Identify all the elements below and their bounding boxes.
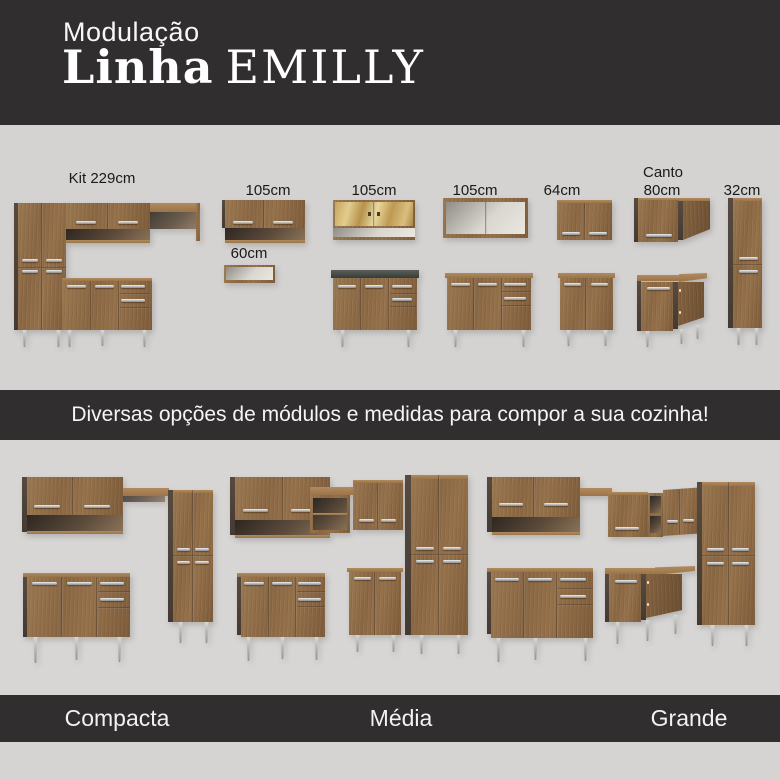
leg (679, 329, 684, 344)
handle (589, 232, 607, 235)
cabinet-corner-base-80 (637, 271, 707, 348)
leg (355, 635, 360, 652)
kitchen-compacta (22, 477, 215, 668)
drawer-divider (297, 606, 325, 608)
drawer-divider (390, 293, 417, 295)
door-divider (282, 477, 284, 520)
cubby (650, 496, 661, 513)
leg (117, 637, 122, 662)
drawer-divider (297, 591, 325, 593)
handle (243, 509, 268, 512)
angled-side (683, 201, 710, 240)
leg (521, 330, 526, 347)
drawer-divider (558, 604, 593, 606)
size-label-grande: Grande (651, 695, 728, 742)
handle (273, 221, 293, 224)
leg (67, 330, 72, 347)
handle (732, 562, 749, 565)
leg (419, 635, 424, 654)
shelf-board (313, 513, 347, 515)
open-niche (150, 212, 196, 229)
module-label-105-2: 105cm (351, 182, 396, 199)
handle (233, 221, 253, 224)
leg (314, 637, 319, 660)
open-niche (123, 496, 165, 502)
leg (710, 625, 715, 646)
handle (338, 285, 356, 288)
leg (645, 331, 650, 347)
leg (74, 637, 79, 660)
drawer-divider (502, 305, 531, 307)
cabinet-tall-32 (728, 198, 764, 350)
module-label-105-3: 105cm (452, 182, 497, 199)
handle (739, 257, 758, 260)
kitchens-section (0, 440, 780, 695)
glass-knob (368, 212, 371, 216)
handle (615, 527, 639, 530)
handle (34, 505, 60, 508)
handle (354, 577, 371, 580)
module-label-canto-1: Canto (643, 164, 683, 181)
open-niche (66, 229, 150, 240)
leg (340, 330, 345, 347)
handle (244, 582, 264, 585)
size-label-media: Média (370, 695, 433, 742)
page-title: LinhaEMILLY (62, 40, 425, 94)
handle (443, 547, 461, 550)
kitchen-grande (487, 477, 780, 667)
drawer-handle (392, 298, 412, 301)
door-divider (118, 281, 120, 330)
drawer-handle (560, 578, 586, 581)
shelf-board (333, 237, 415, 240)
handle (177, 548, 190, 551)
door-divider (679, 490, 681, 534)
handle (562, 232, 580, 235)
countertop-corner (679, 273, 707, 282)
base-cabinet (62, 281, 152, 330)
catalog-page: Modulação LinhaEMILLY Kit 229cm 105cm 60… (0, 0, 780, 780)
cabinet-open-105 (443, 198, 528, 238)
size-label-compacta: Compacta (65, 695, 170, 742)
handle (667, 520, 678, 523)
handle (443, 560, 461, 563)
cabinet-base-105 (445, 273, 533, 348)
countertop-corner (655, 566, 695, 575)
module-label-32: 32cm (724, 182, 761, 199)
cabinet-corner-wall-80 (634, 198, 710, 242)
cabinet-glass-105 (333, 200, 415, 240)
open-niche (226, 267, 273, 280)
leg (736, 328, 741, 345)
corner-recess (678, 201, 683, 240)
door-divider (584, 203, 586, 240)
corner-recess (641, 574, 646, 620)
drawer-handle (121, 285, 145, 288)
leg (204, 622, 209, 643)
handle (528, 578, 552, 581)
cabinet-kit-229 (14, 201, 200, 349)
handle (118, 221, 138, 224)
leg (33, 637, 38, 663)
shelf-60 (224, 265, 275, 283)
handle (365, 285, 383, 288)
module-label-kit229: Kit 229cm (69, 170, 136, 187)
drawer-handle (504, 297, 526, 300)
handle (381, 519, 396, 522)
kitchen-media (230, 475, 470, 690)
modules-section: Kit 229cm 105cm 60cm 105cm 105cm 64cm Ca… (0, 125, 780, 390)
leg (754, 328, 759, 345)
door-divider (728, 482, 730, 625)
handle (739, 270, 758, 273)
leg (22, 330, 27, 347)
leg (100, 330, 105, 346)
door-divider (61, 577, 63, 637)
bridge-shelf (123, 488, 169, 496)
cabinet-base-64 (558, 273, 615, 347)
title-linha: Linha (62, 40, 214, 94)
handle (379, 577, 396, 580)
handle (451, 283, 470, 286)
leg (391, 635, 396, 652)
top-board (733, 198, 762, 201)
drawer-handle (100, 582, 124, 585)
handle (95, 285, 114, 288)
open-niche (27, 515, 123, 531)
leg (406, 330, 411, 347)
leg (453, 330, 458, 347)
promo-banner: Diversas opções de módulos e medidas par… (0, 390, 780, 440)
open-niche (333, 228, 415, 237)
shelf-board (235, 535, 330, 538)
handle (495, 578, 519, 581)
door-divider (72, 477, 74, 515)
hinge-dot (647, 581, 649, 584)
header-banner: Modulação LinhaEMILLY (0, 0, 780, 125)
leg (583, 638, 588, 661)
leg (615, 622, 620, 644)
sizes-band: Compacta Média Grande (0, 695, 780, 742)
leg (456, 635, 461, 654)
side-panel (196, 203, 200, 241)
hinge-dot (647, 603, 649, 606)
bottom-strip (0, 742, 780, 780)
leg (56, 330, 61, 347)
shelf-board (150, 203, 200, 212)
drawer-divider (390, 306, 417, 308)
door-divider (90, 281, 92, 330)
handle (416, 560, 434, 563)
handle (67, 285, 86, 288)
leg (673, 615, 678, 634)
handle (76, 221, 96, 224)
hinge-dot (679, 289, 681, 292)
handle (615, 580, 637, 583)
door-divider (360, 278, 362, 330)
handle (564, 283, 581, 286)
door-divider (268, 577, 270, 637)
drawer-divider (120, 293, 150, 295)
handle (499, 503, 523, 506)
shelf-board (66, 240, 150, 243)
door-divider (411, 554, 468, 556)
countertop-sink (331, 270, 419, 278)
drawer-divider (120, 307, 150, 309)
door-divider (523, 572, 525, 638)
leg (566, 330, 571, 346)
handle (591, 283, 608, 286)
cabinet-sink-105 (331, 270, 419, 348)
cubby (650, 516, 661, 533)
shelf-board (225, 240, 305, 243)
leg (496, 638, 501, 662)
glass-knob (377, 212, 380, 216)
corner-recess (673, 282, 678, 329)
handle (416, 547, 434, 550)
drawer-divider (98, 607, 130, 609)
drawer-divider (558, 588, 593, 590)
promo-banner-text: Diversas opções de módulos e medidas par… (0, 390, 780, 440)
handle (177, 561, 190, 564)
leg (142, 330, 147, 347)
handle (707, 562, 724, 565)
module-label-60: 60cm (231, 245, 268, 262)
door-divider (377, 483, 379, 530)
leg (280, 637, 285, 659)
drawer-handle (392, 285, 412, 288)
handle (84, 505, 110, 508)
drawer-divider (502, 291, 531, 293)
corner-wall-cabinet (608, 495, 648, 537)
handle (478, 283, 497, 286)
leg (744, 625, 749, 646)
drawer-handle (504, 283, 526, 286)
module-label-64: 64cm (544, 182, 581, 199)
handle (32, 582, 57, 585)
door-divider (18, 267, 66, 269)
handle (22, 259, 38, 262)
wall-cabinet (27, 477, 123, 515)
door-divider (173, 555, 213, 557)
door-divider (501, 278, 503, 330)
bridge-shelf (310, 487, 355, 495)
title-emilly: EMILLY (226, 40, 425, 94)
door-divider (263, 200, 265, 228)
door-divider (373, 202, 375, 226)
angled-side (678, 282, 704, 326)
handle (22, 270, 38, 273)
handle (544, 503, 568, 506)
handle (46, 270, 62, 273)
leg (533, 638, 538, 660)
module-label-canto-2: 80cm (644, 182, 681, 199)
door-divider (107, 203, 109, 229)
door-divider (585, 278, 587, 330)
open-niche (225, 228, 305, 240)
door-divider (388, 278, 390, 330)
handle (67, 582, 92, 585)
drawer-handle (100, 598, 124, 601)
drawer-handle (298, 598, 321, 601)
handle (683, 519, 694, 522)
door-divider (533, 477, 535, 517)
handle (272, 582, 292, 585)
handle (359, 519, 374, 522)
shelf-divider (485, 202, 487, 234)
drawer-handle (560, 595, 586, 598)
open-niche (492, 517, 580, 532)
drawer-handle (121, 299, 145, 302)
handle (46, 259, 62, 262)
module-label-105-1: 105cm (245, 182, 290, 199)
doors (733, 198, 762, 328)
leg (695, 325, 700, 339)
door-divider (733, 264, 762, 266)
handle (195, 548, 209, 551)
leg (178, 622, 183, 643)
handle (707, 548, 724, 551)
cabinet-wall-105-a (222, 200, 305, 243)
hinge-dot (679, 311, 681, 314)
wall-cabinet (492, 477, 580, 517)
drawer-handle (298, 582, 321, 585)
handle (732, 548, 749, 551)
door-divider (473, 278, 475, 330)
handle (647, 287, 670, 290)
leg (645, 620, 650, 641)
handle (195, 561, 209, 564)
angled-side (646, 574, 682, 618)
leg (246, 637, 251, 661)
leg (603, 330, 608, 346)
countertop (637, 275, 681, 281)
cabinet-wall-64 (557, 200, 612, 240)
shelf-board (27, 531, 123, 534)
door-divider (702, 555, 755, 557)
drawer-divider (98, 591, 130, 593)
shelf-board (492, 532, 580, 535)
door-divider (374, 572, 376, 635)
handle (646, 234, 672, 237)
